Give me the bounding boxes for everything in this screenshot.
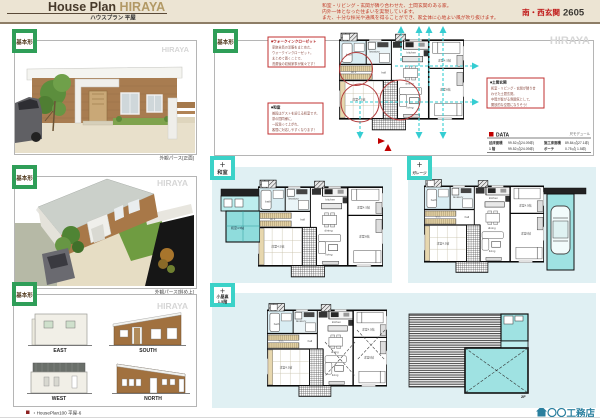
svg-text:2F: 2F — [521, 394, 526, 398]
svg-text:和室・リビング・玄関が隣り合わせた、土間玄関のある家。: 和室・リビング・玄関が隣り合わせた、土間玄関のある家。 — [322, 2, 452, 9]
svg-text:ハウスプラン 平屋: ハウスプラン 平屋 — [90, 14, 136, 22]
svg-text:NORTH: NORTH — [144, 396, 162, 402]
svg-text:HIRAYA: HIRAYA — [157, 301, 188, 311]
svg-text:0.75㎡( 1.5坪): 0.75㎡( 1.5坪) — [565, 146, 586, 151]
svg-text:・HousePlan100 平屋-6: ・HousePlan100 平屋-6 — [32, 411, 82, 417]
svg-text:＋: ＋ — [416, 162, 422, 169]
svg-text:基本形: 基本形 — [16, 291, 33, 299]
svg-text:2605: 2605 — [563, 8, 585, 19]
svg-text:1 階: 1 階 — [489, 146, 496, 151]
svg-text:89.84㎡(27.1坪): 89.84㎡(27.1坪) — [565, 140, 589, 145]
svg-text:99.52㎡(24.09坪): 99.52㎡(24.09坪) — [508, 140, 534, 145]
svg-text:普段はゲストを迎える和室です。: 普段はゲストを迎える和室です。 — [272, 111, 319, 116]
svg-text:WEST: WEST — [52, 396, 66, 402]
svg-text:尺モデュール: 尺モデュール — [570, 131, 591, 136]
svg-text:SOUTH: SOUTH — [139, 348, 157, 354]
svg-text:■土間玄関: ■土間玄関 — [490, 80, 507, 85]
svg-text:客間に対応しやすくなります！: 客間に対応しやすくなります！ — [272, 127, 317, 132]
svg-text:延床面積: 延床面積 — [488, 140, 503, 145]
svg-text:99.52㎡(24.09坪): 99.52㎡(24.09坪) — [508, 146, 534, 151]
svg-text:外観パース[正面]: 外観パース[正面] — [160, 155, 194, 162]
svg-text:施工床面積: 施工床面積 — [544, 140, 562, 145]
svg-text:まとめて置くことで、: まとめて置くことで、 — [272, 56, 304, 61]
svg-text:基本形: 基本形 — [16, 38, 33, 46]
svg-text:■ウォークインクローゼット: ■ウォークインクローゼット — [271, 39, 317, 44]
svg-text:■和室: ■和室 — [271, 105, 281, 110]
svg-text:南・西玄関: 南・西玄関 — [522, 7, 560, 17]
svg-text:中間が繋がる雰囲気として、: 中間が繋がる雰囲気として、 — [491, 97, 532, 102]
svg-text:洗濯後の収納家事が楽々です！: 洗濯後の収納家事が楽々です！ — [272, 61, 317, 66]
svg-text:家族全員の洋服をまとめた、: 家族全員の洋服をまとめた、 — [272, 45, 313, 50]
svg-text:和室・リビング・玄関が隣り合: 和室・リビング・玄関が隣り合 — [491, 86, 536, 91]
svg-text:ポーチ: ポーチ — [544, 146, 555, 151]
svg-text:和室: 和室 — [217, 168, 227, 176]
svg-text:ウォークインクローゼット。: ウォークインクローゼット。 — [272, 50, 313, 55]
svg-text:基本形: 基本形 — [16, 174, 33, 182]
svg-text:和室4.5帖: 和室4.5帖 — [231, 225, 244, 230]
svg-text:わせた土間玄関。: わせた土間玄関。 — [491, 91, 517, 96]
svg-text:一段潜って上がれ、: 一段潜って上がれ、 — [272, 122, 301, 127]
svg-text:基本形: 基本形 — [217, 38, 234, 46]
svg-text:1.5階: 1.5階 — [218, 298, 228, 304]
svg-text:＋: ＋ — [219, 162, 225, 169]
svg-text:EAST: EAST — [53, 348, 66, 354]
svg-text:開放的な空間になりそう！: 開放的な空間になりそう！ — [491, 102, 529, 107]
svg-text:ガレージ: ガレージ — [412, 170, 427, 175]
svg-text:内外一体となった住まいを実現しています。: 内外一体となった住まいを実現しています。 — [322, 8, 417, 15]
svg-text:HIRAYA: HIRAYA — [162, 45, 190, 54]
svg-text:HIRAYA: HIRAYA — [157, 178, 188, 188]
svg-text:茶の間同様に、: 茶の間同様に、 — [272, 116, 294, 121]
svg-text:House Plan HIRAYA: House Plan HIRAYA — [48, 0, 165, 14]
